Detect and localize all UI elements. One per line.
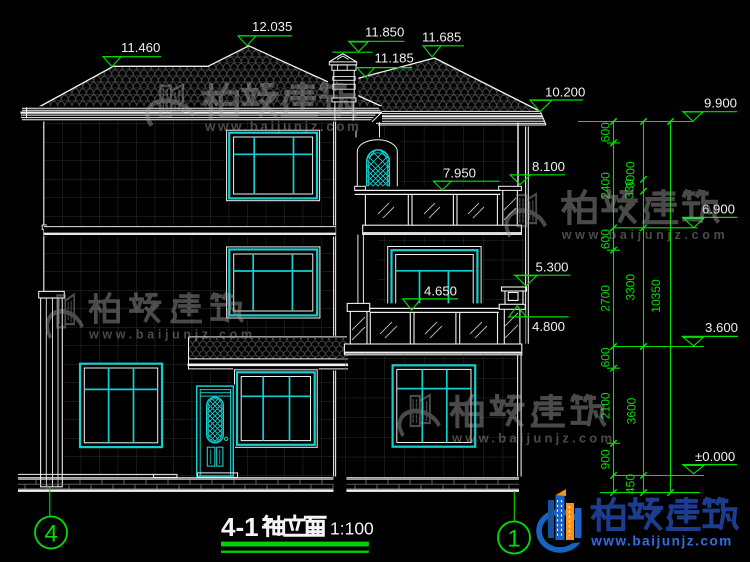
- svg-text:900: 900: [599, 449, 613, 469]
- svg-text:1: 1: [507, 526, 520, 553]
- svg-text:10350: 10350: [649, 279, 663, 313]
- svg-text:8.100: 8.100: [532, 159, 565, 174]
- svg-text:2700: 2700: [599, 285, 613, 312]
- svg-text:5.300: 5.300: [536, 260, 569, 275]
- svg-text:4.650: 4.650: [424, 284, 457, 299]
- svg-text:4: 4: [44, 521, 57, 548]
- svg-text:3300: 3300: [624, 274, 638, 301]
- svg-text:3.600: 3.600: [705, 320, 738, 335]
- svg-text:4.800: 4.800: [532, 319, 565, 334]
- svg-text:9.900: 9.900: [704, 96, 737, 111]
- svg-text:11.185: 11.185: [375, 51, 414, 66]
- svg-text:10.200: 10.200: [545, 85, 585, 100]
- svg-text:600: 600: [599, 122, 613, 142]
- svg-text:4-1: 4-1: [221, 512, 259, 542]
- svg-text:3600: 3600: [625, 397, 639, 424]
- svg-text:450: 450: [624, 474, 638, 494]
- svg-text:7.950: 7.950: [443, 166, 476, 181]
- svg-text:12.035: 12.035: [252, 19, 292, 34]
- svg-text:1:100: 1:100: [330, 519, 374, 539]
- svg-text:11.460: 11.460: [121, 40, 160, 55]
- svg-text:11.850: 11.850: [365, 25, 404, 40]
- svg-text:±0.000: ±0.000: [695, 449, 735, 464]
- svg-text:11.685: 11.685: [422, 30, 461, 45]
- svg-text:600: 600: [599, 347, 613, 367]
